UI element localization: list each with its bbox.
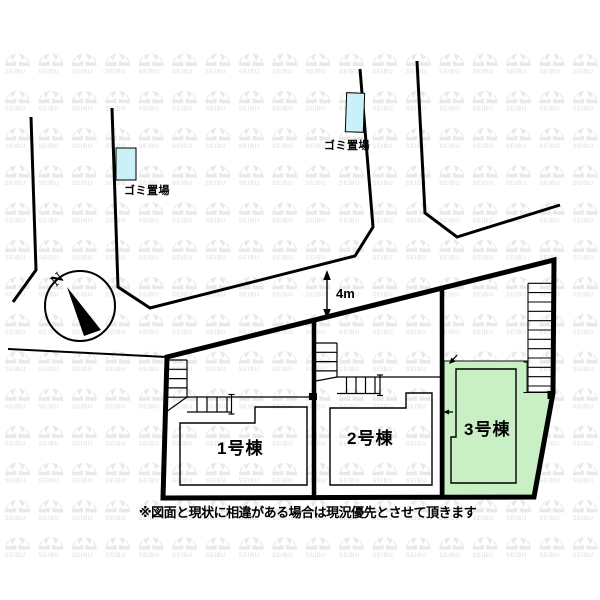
road-width-arrow <box>323 270 331 319</box>
disclaimer-note: ※図面と現状に相違がある場合は現況優先とさせて頂きます <box>139 506 476 519</box>
garbage-label-1: ゴミ置場 <box>124 186 170 197</box>
garbage-area-2 <box>345 93 364 133</box>
road-right-edge <box>417 61 560 237</box>
stairs-plot1 <box>166 360 317 414</box>
garbage-areas <box>116 93 365 180</box>
plot1-label: 1号棟 <box>217 440 263 457</box>
stairs-plot2 <box>316 343 440 396</box>
road-width-label: 4m <box>336 287 355 300</box>
plot2-label: 2号棟 <box>347 430 393 447</box>
garbage-area-1 <box>116 148 136 180</box>
compass-needle <box>67 287 101 336</box>
road-lower-edge <box>8 349 167 357</box>
road-lines <box>8 61 560 357</box>
road-left-edge <box>13 117 36 302</box>
stairs-plot3 <box>524 283 555 399</box>
garbage-label-2: ゴミ置場 <box>324 141 370 152</box>
plot3-label: 3号棟 <box>464 421 510 438</box>
stairs-plot1-turn <box>166 397 187 412</box>
stairs-plot2-turn <box>316 377 337 381</box>
site-plan-canvas: SEIBU <box>0 0 600 600</box>
